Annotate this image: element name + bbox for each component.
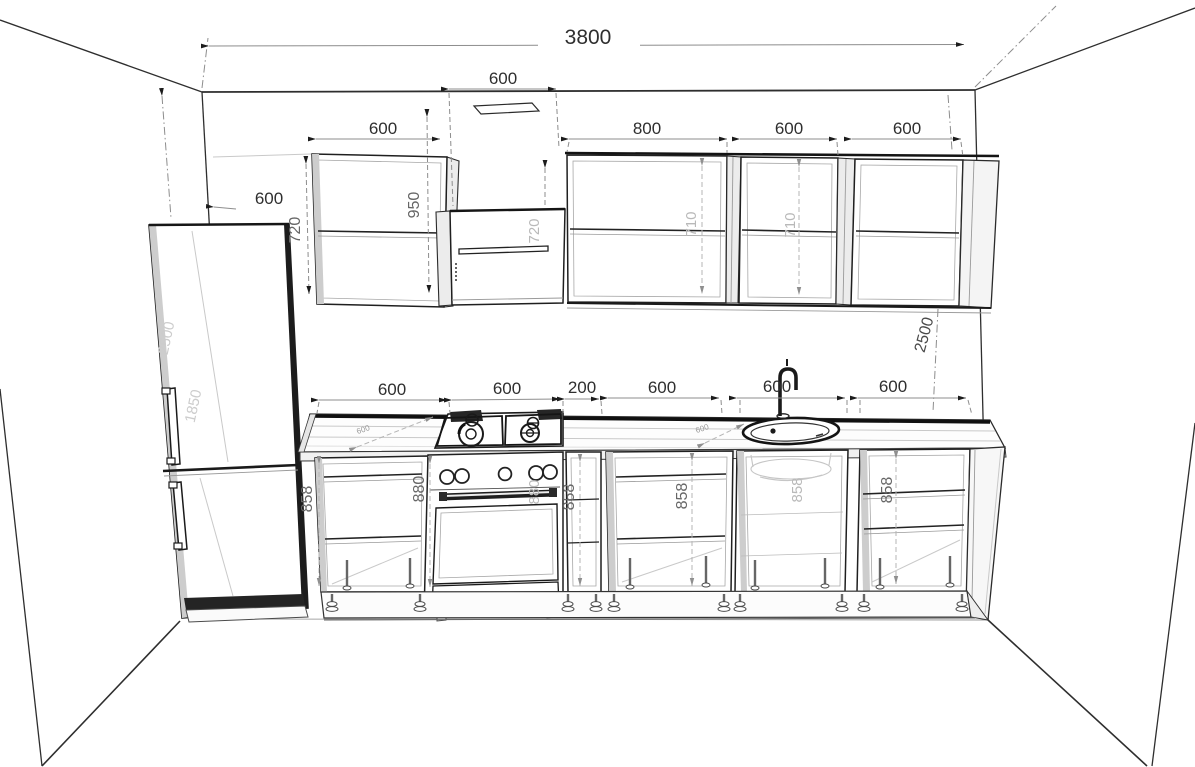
cooktop xyxy=(435,409,563,448)
dim-base3-width: 600 xyxy=(879,377,907,396)
dim-base1-height: 858 xyxy=(299,486,316,513)
dim-filler-height: 858 xyxy=(561,484,578,511)
dim-wall-to-cabinet: 600 xyxy=(255,189,283,208)
dim-sink-width: 600 xyxy=(763,377,791,396)
dim-upper2-width: 800 xyxy=(633,119,661,138)
dim-upper3-inner-height: 710 xyxy=(782,212,799,237)
dim-upper1-side-height: 720 xyxy=(287,217,304,244)
plinth xyxy=(321,591,988,620)
dim-base2-height: 858 xyxy=(674,483,691,510)
dim-base3-height: 858 xyxy=(879,477,896,504)
refrigerator: 2500 1850 xyxy=(149,224,308,622)
hood-cabinet: 720 xyxy=(436,209,565,306)
upper-cabinet-600-right xyxy=(851,159,999,308)
oven-door xyxy=(433,504,558,584)
dim-upper1-width: 600 xyxy=(369,119,397,138)
upper-cabinet-group-right: 710 710 xyxy=(565,153,999,313)
sink-cabinet: 858 xyxy=(735,450,848,592)
dim-sink-cab-height: 858 xyxy=(789,477,806,502)
dim-stove-height: 880 xyxy=(411,476,428,503)
dim-upper4-width: 600 xyxy=(893,119,921,138)
dim-upper2-inner-height: 710 xyxy=(683,211,700,236)
dim-hood-height: 720 xyxy=(526,218,543,243)
filler-cabinet-200 xyxy=(566,452,601,592)
stove: 880 xyxy=(424,409,563,621)
dim-total-width: 3800 xyxy=(565,26,612,49)
drawing-canvas: 2500 1850 720 xyxy=(0,0,1195,767)
base-cabinet-2 xyxy=(606,451,733,592)
kitchen-elevation-drawing: 2500 1850 720 xyxy=(0,0,1195,767)
sink-drain xyxy=(770,428,775,433)
ceiling-vent xyxy=(474,103,539,114)
upper-cabinet-800 xyxy=(567,155,727,303)
dim-upper1-height: 950 xyxy=(406,192,423,219)
dim-hood-width: 600 xyxy=(489,69,517,88)
dim-filler-width: 200 xyxy=(568,378,596,397)
dim-base2-width: 600 xyxy=(648,378,676,397)
dim-room-height: 2500 xyxy=(912,315,938,354)
dim-stove-height-right: 880 xyxy=(526,479,543,504)
dim-upper3-width: 600 xyxy=(775,119,803,138)
dim-stove-width: 600 xyxy=(493,379,521,398)
dim-base1-width: 600 xyxy=(378,380,406,399)
